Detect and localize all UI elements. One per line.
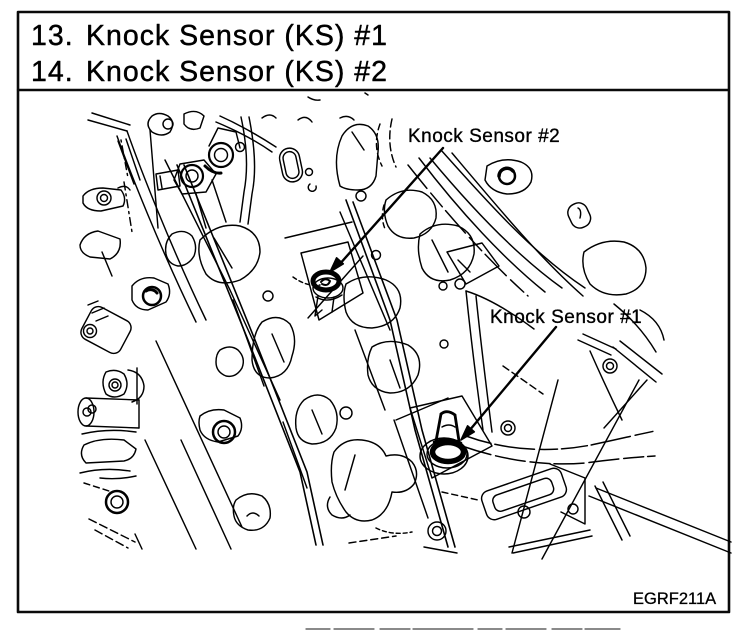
svg-text:Knock Sensor #1: Knock Sensor #1 <box>490 307 642 328</box>
svg-text:14.: 14. <box>31 56 74 88</box>
svg-text:EGRF211A: EGRF211A <box>633 590 716 608</box>
svg-text:13.: 13. <box>31 20 74 52</box>
svg-text:Knock Sensor #2: Knock Sensor #2 <box>408 126 560 147</box>
svg-text:Knock Sensor (KS) #2: Knock Sensor (KS) #2 <box>86 56 388 88</box>
svg-text:Knock Sensor (KS) #1: Knock Sensor (KS) #1 <box>86 20 388 52</box>
